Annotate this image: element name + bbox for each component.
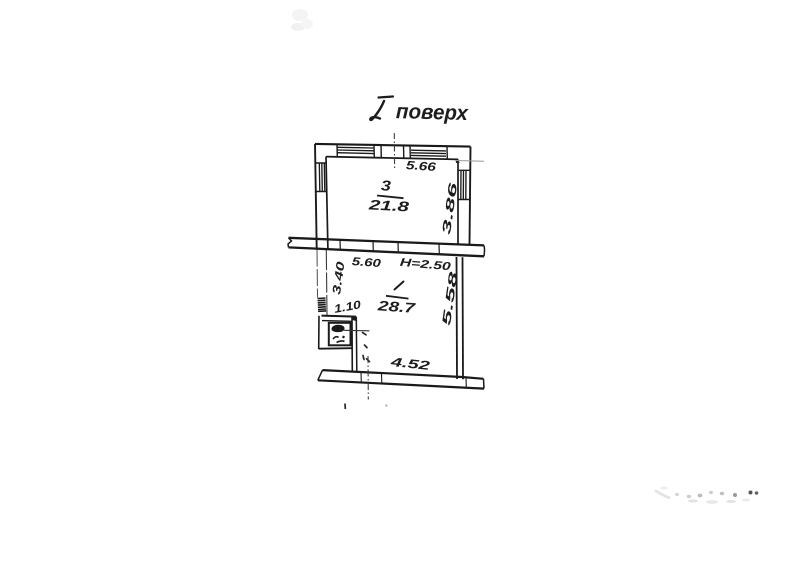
svg-text:21.8: 21.8 xyxy=(367,196,410,214)
svg-text:5.66: 5.66 xyxy=(405,158,436,174)
svg-text:28.7: 28.7 xyxy=(376,297,417,316)
svg-text:3: 3 xyxy=(381,178,392,194)
svg-text:5.60: 5.60 xyxy=(351,256,382,270)
svg-text:поверх: поверх xyxy=(396,100,470,125)
